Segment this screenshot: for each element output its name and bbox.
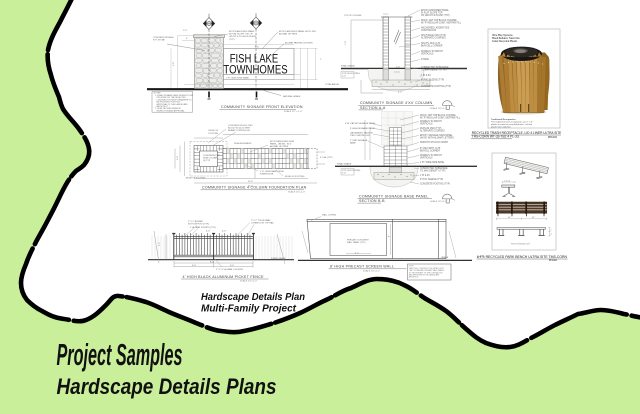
svg-text:FINISH GRADE: FINISH GRADE — [271, 257, 286, 260]
svg-text:CONCRETE FOOTING (TYP): CONCRETE FOOTING (TYP) — [420, 184, 450, 186]
svg-text:TIES CONTINUOUS: TIES CONTINUOUS — [350, 135, 370, 137]
svg-text:UM 'B') WITH ALUMAT LETTERS: UM 'B') WITH ALUMAT LETTERS — [420, 137, 454, 140]
svg-text:CONNECTOR TOP RAIL: CONNECTOR TOP RAIL — [251, 222, 275, 225]
svg-text:4'-0": 4'-0" — [159, 242, 161, 246]
svg-text:W/ 'R' REGULAR JOINT, MORTAR F: W/ 'R' REGULAR JOINT, MORTAR FILL — [421, 22, 462, 25]
svg-text:ROCK: NAT TOP BLOCK COURSE: ROCK: NAT TOP BLOCK COURSE — [420, 114, 456, 117]
svg-text:8' HIGH SIGNAGE PANEL: 8' HIGH SIGNAGE PANEL — [350, 127, 376, 130]
svg-text:EPOXY/ANODIZED PANEL: EPOXY/ANODIZED PANEL — [229, 30, 256, 33]
svg-text:#P1002: #P1002 — [549, 260, 558, 262]
svg-text:4'-0": 4'-0" — [177, 156, 179, 160]
svg-text:BOTTOM POST (TYP.): BOTTOM POST (TYP.) — [188, 224, 209, 226]
svg-text:NATURAL GRADE: NATURAL GRADE — [283, 95, 301, 98]
svg-text:4'-0": 4'-0" — [192, 265, 196, 267]
svg-text:DOWELS TO MATCH: DOWELS TO MATCH — [421, 50, 443, 53]
svg-text:SCALE 1/2"=1'-0": SCALE 1/2"=1'-0" — [363, 269, 380, 272]
svg-text:SCALE 1/2" = 1'-0": SCALE 1/2" = 1'-0" — [284, 110, 303, 113]
svg-text:IN FLAT SLOPE TOP, OF: IN FLAT SLOPE TOP, OF — [229, 33, 253, 36]
svg-text:OF GROUT & PLUSH (TYP): OF GROUT & PLUSH (TYP) — [421, 15, 450, 17]
svg-text:PRECAST CONCRETE: PRECAST CONCRETE — [347, 239, 369, 242]
svg-text:CONCRETE SPLASH: CONCRETE SPLASH — [153, 36, 174, 39]
svg-text:FOOTING: FOOTING — [209, 133, 219, 135]
svg-text:TOP OF COLUMN: TOP OF COLUMN — [344, 15, 362, 17]
svg-text:Plank Builders Trash Can: Plank Builders Trash Can — [492, 38, 520, 40]
svg-text:(4) TYP: (4) TYP — [203, 160, 211, 162]
svg-text:WALL PANEL (TYP): WALL PANEL (TYP) — [347, 241, 366, 244]
svg-text:COMMUNITY SIGNAGE 4'X4' COLUMN: COMMUNITY SIGNAGE 4'X4' COLUMN — [360, 101, 432, 105]
svg-text:COMMUNITY SIGNAGE 4 COLUMN FOU: COMMUNITY SIGNAGE 4 COLUMN FOUNDATION PL… — [202, 186, 307, 190]
svg-text:Hardscape Details Plan: Hardscape Details Plan — [201, 292, 305, 303]
svg-text:TOWNHOMES: TOWNHOMES — [223, 62, 287, 76]
svg-text:5 FT. RE: 5 FT. RE — [477, 257, 486, 259]
svg-text:1" ALUMAT PICKETS (TYP.): 1" ALUMAT PICKETS (TYP.) — [190, 226, 216, 229]
svg-text:www.ultraplay.com: www.ultraplay.com — [511, 242, 530, 245]
svg-text:GROUT 4 PLUSH IN PLACE: GROUT 4 PLUSH IN PLACE — [229, 35, 256, 38]
svg-text:1'-0": 1'-0" — [342, 173, 347, 175]
svg-text:COMMUNITY SIGNAGE FRONT ELEVAT: COMMUNITY SIGNAGE FRONT ELEVATION — [221, 105, 303, 109]
svg-text:BUR-ELL CORNER: BUR-ELL CORNER — [420, 151, 440, 153]
svg-text:STY STONE: STY STONE — [153, 40, 165, 42]
svg-text:4'-0": 4'-0" — [230, 265, 234, 267]
svg-text:ARCHITECT: ARCHITECT — [409, 276, 419, 279]
svg-text:plastic liner optional.: plastic liner optional. — [491, 126, 511, 129]
svg-text:4'-0": 4'-0" — [206, 231, 210, 233]
svg-text:CONTINUOUS: CONTINUOUS — [421, 30, 437, 32]
svg-text:#P1002: #P1002 — [548, 135, 558, 139]
svg-text:W/ 'R' REGULAR JOINT, MORTAR F: W/ 'R' REGULAR JOINT, MORTAR FILL — [420, 117, 461, 120]
svg-text:FINISH EDGE: FINISH EDGE — [260, 174, 274, 176]
svg-text:ROCK: NAT TOP BLOCK COURSE: ROCK: NAT TOP BLOCK COURSE — [421, 19, 457, 22]
svg-text:1 'B' & #4: 1 'B' & #4 — [420, 175, 430, 177]
svg-text:4' HIGH BLACK ALUMINUM PICKET: 4' HIGH BLACK ALUMINUM PICKET FENCE — [183, 275, 265, 279]
svg-text:EPOXY/ANODIZED SIGN: EPOXY/ANODIZED SIGN — [270, 140, 295, 143]
svg-text:11'-4": 11'-4" — [248, 181, 253, 183]
svg-text:TOTAL ABOVE: TOTAL ABOVE — [325, 83, 340, 86]
svg-text:STONE: STONE — [421, 59, 429, 61]
svg-text:Cedar Recycled Plastic: Cedar Recycled Plastic — [492, 40, 518, 43]
svg-text:6" PVC SLEEVE (TYP): 6" PVC SLEEVE (TYP) — [420, 179, 443, 181]
svg-text:1 FT. SIDE EDGE BAND: 1 FT. SIDE EDGE BAND — [226, 77, 249, 80]
svg-text:DOWELS TO MATCH: DOWELS TO MATCH — [420, 154, 442, 157]
svg-text:FINAL GRADE: FINAL GRADE — [337, 163, 352, 166]
svg-text:COMPACTED SUBGRADE: COMPACTED SUBGRADE — [420, 167, 448, 170]
svg-text:ALTERNATE COURSES: ALTERNATE COURSES — [420, 130, 445, 133]
svg-text:SPLIT/FACE CMU (TYP): SPLIT/FACE CMU (TYP) — [421, 34, 446, 37]
svg-text:EDGE OF FOOTING: EDGE OF FOOTING — [186, 178, 206, 180]
svg-text:BASE: BASE — [350, 142, 356, 145]
svg-text:6" PVC SLEEVE (TYP): 6" PVC SLEEVE (TYP) — [421, 80, 444, 82]
svg-text:VERTICALS: VERTICALS — [420, 123, 433, 126]
svg-text:CONCRETE FOOTING (TYP): CONCRETE FOOTING (TYP) — [421, 86, 451, 88]
svg-text:DOWELS TO MATCH: DOWELS TO MATCH — [420, 120, 442, 123]
svg-text:4'-6": 4'-6" — [173, 62, 175, 66]
svg-text:2' CMU SIGNAGE: 2' CMU SIGNAGE — [350, 139, 368, 142]
svg-text:ANCHORED LADDER TIES: ANCHORED LADDER TIES — [421, 26, 450, 29]
svg-text:SCALE 1/2"=1'-0": SCALE 1/2"=1'-0" — [430, 107, 447, 110]
svg-text:36": 36" — [532, 217, 535, 219]
svg-text:VERTICALS: VERTICALS — [421, 53, 434, 56]
svg-text:(TYP): (TYP) — [229, 39, 235, 41]
svg-text:SECTION B-B: SECTION B-B — [359, 199, 385, 203]
svg-text:VERTICALS: VERTICALS — [420, 157, 433, 160]
svg-text:1'-6": 1'-6" — [183, 30, 187, 32]
svg-text:GALVANIZED LADDER: GALVANIZED LADDER — [350, 132, 373, 135]
svg-text:1 'B' & #4: 1 'B' & #4 — [421, 75, 431, 77]
svg-text:SCALE 1/2"=1'-0": SCALE 1/2"=1'-0" — [288, 190, 305, 193]
svg-text:8'-0": 8'-0" — [210, 261, 214, 263]
svg-text:FINAL GRADE: FINAL GRADE — [341, 65, 355, 68]
svg-text:Hardscape Details Plans: Hardscape Details Plans — [57, 374, 277, 399]
svg-text:ALTERNATE COURSES: ALTERNATE COURSES — [421, 37, 446, 40]
svg-text:COMMUNITY SIGNAGE BASE PANEL: COMMUNITY SIGNAGE BASE PANEL — [359, 194, 429, 198]
svg-text:1 FT. WIDE BAND FROM: 1 FT. WIDE BAND FROM — [260, 170, 284, 173]
svg-text:4'-0": 4'-0" — [222, 231, 226, 233]
svg-text:2" X 1.5" ALUMAT LOUVERS: 2" X 1.5" ALUMAT LOUVERS — [216, 268, 243, 271]
svg-text:SMOOTH STUCCO FINISH: SMOOTH STUCCO FINISH — [420, 142, 448, 144]
svg-text:SIGN ALIGNMENT: SIGN ALIGNMENT — [234, 142, 252, 145]
svg-text:Traditional Receptacles:: Traditional Receptacles: — [491, 118, 516, 121]
svg-text:1'-4 1/2": 1'-4 1/2" — [504, 180, 511, 182]
svg-text:TO MAX DENSITY (TYP): TO MAX DENSITY (TYP) — [421, 69, 447, 72]
svg-text:4": 4" — [186, 38, 188, 40]
svg-text:EDGE OF FOOTING: EDGE OF FOOTING — [285, 176, 305, 178]
svg-text:GRADE: GRADE — [441, 256, 449, 259]
svg-text:2" X 2" TOP ALUMAT: 2" X 2" TOP ALUMAT — [251, 219, 271, 222]
svg-text:36": 36" — [508, 217, 511, 219]
svg-text:COMPACTED SUBGRADE: COMPACTED SUBGRADE — [421, 66, 449, 69]
svg-text:Multi-Family Project: Multi-Family Project — [201, 303, 297, 314]
svg-text:1'-4": 1'-4" — [396, 66, 400, 68]
svg-text:INSPECTION AND APPROVAL: INSPECTION AND APPROVAL — [157, 109, 186, 112]
svg-text:6 FT. RECYCLED PARK BENCH ULTR: 6 FT. RECYCLED PARK BENCH ULTRA SITE TMS… — [477, 255, 568, 259]
svg-text:8' HIGH PRECAST SCREEN WALL: 8' HIGH PRECAST SCREEN WALL — [330, 265, 394, 269]
svg-text:ALUMAT LETTERS: ALUMAT LETTERS — [279, 33, 298, 36]
svg-text:WALL COPING: WALL COPING — [322, 214, 336, 217]
svg-text:4" DIA. (TYP): 4" DIA. (TYP) — [320, 156, 333, 159]
svg-text:EPOXY SIGNAGE SIGN PANEL: EPOXY SIGNAGE SIGN PANEL — [420, 134, 453, 137]
svg-text:SCALE 1/2"=1'-0": SCALE 1/2"=1'-0" — [240, 280, 257, 283]
svg-text:2" X 2" ALUMAT: 2" X 2" ALUMAT — [188, 220, 204, 223]
svg-text:EPOXY/ANODIZED PANEL: EPOXY/ANODIZED PANEL — [421, 9, 450, 12]
svg-text:TRS-CORN WT-33-TB2 4 PL-33: TRS-CORN WT-33-TB2 4 PL-33 — [472, 135, 519, 139]
svg-text:4'X4' CAP W/ SIGNAGE PANEL: 4'X4' CAP W/ SIGNAGE PANEL — [345, 122, 376, 125]
svg-text:Project Samples: Project Samples — [57, 337, 183, 372]
svg-text:SECTION A-A: SECTION A-A — [360, 106, 386, 110]
svg-text:Ultra Play Systems: Ultra Play Systems — [492, 34, 513, 37]
svg-text:PANEL, UM SEL. W/ 4': PANEL, UM SEL. W/ 4' — [270, 143, 292, 146]
svg-text:8'-0": 8'-0" — [255, 47, 259, 49]
svg-text:1 FT. WIDE SIDE BASE: 1 FT. WIDE SIDE BASE — [420, 161, 445, 164]
svg-text:1'-0": 1'-0" — [342, 76, 346, 78]
svg-text:TO MAX DENSITY (TYP): TO MAX DENSITY (TYP) — [420, 170, 446, 173]
svg-text:IN FLAT SLOPE TOP: IN FLAT SLOPE TOP — [421, 12, 443, 15]
svg-text:REBAR CONTINUOUS: REBAR CONTINUOUS — [228, 129, 250, 132]
svg-text:7'-6": 7'-6" — [345, 41, 347, 45]
svg-text:4'-0": 4'-0" — [398, 92, 402, 94]
svg-text:ALUMAT LETTERS: ALUMAT LETTERS — [270, 145, 289, 148]
svg-text:BUR-CELL CORNER: BUR-CELL CORNER — [421, 46, 443, 48]
svg-text:ALUMAT PAINTED LETTERS: ALUMAT PAINTED LETTERS — [285, 42, 313, 45]
svg-text:SCALE 1/2"=1'-0": SCALE 1/2"=1'-0" — [430, 200, 447, 203]
svg-text:EPOXY ANODIZED PANEL NOTE: W/O: EPOXY ANODIZED PANEL NOTE: W/O — [279, 30, 317, 33]
